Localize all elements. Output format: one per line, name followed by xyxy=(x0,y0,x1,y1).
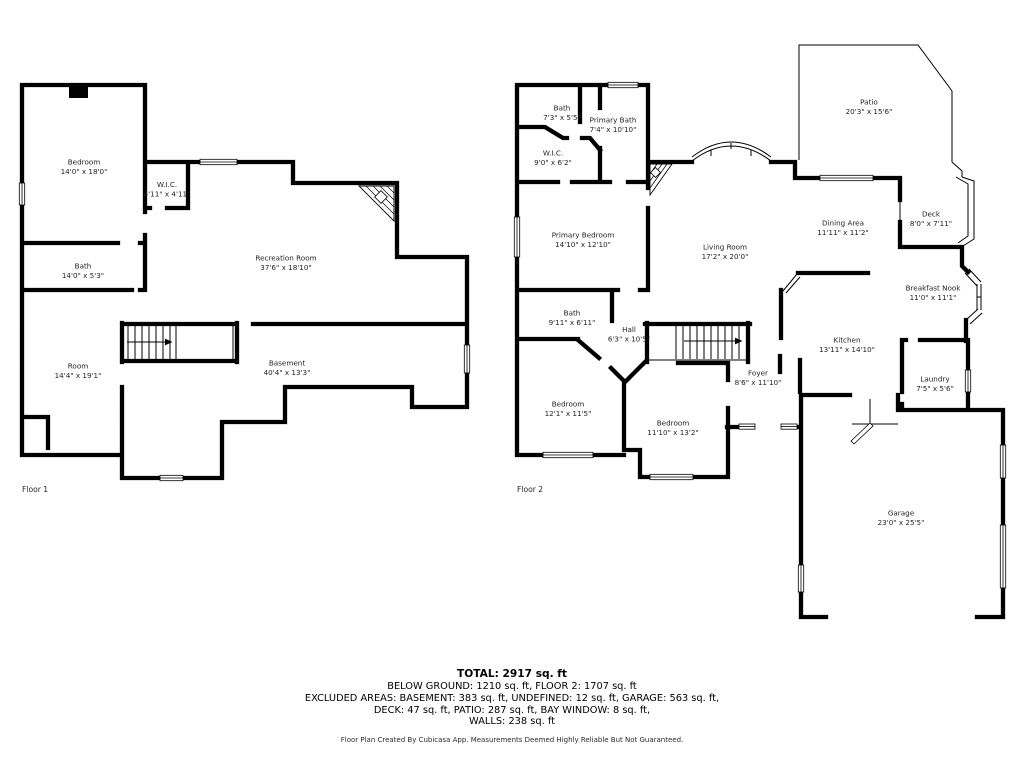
floor1-walls xyxy=(22,85,467,478)
room-label-breakfast-nook: Breakfast Nook 11'0" x 11'1" xyxy=(906,284,962,303)
floor2-fireplace xyxy=(650,164,672,195)
svg-text:Bedroom: Bedroom xyxy=(657,419,690,428)
floor2-plan: Bath 7'3" x 5'5" Primary Bath 7'4" x 10'… xyxy=(514,45,1005,617)
room-label-bath: Bath 14'0" x 5'3" xyxy=(62,262,104,281)
floorplan-drawing: Bedroom 14'0" x 18'0" W.I.C. 4'11" x 4'1… xyxy=(0,0,1024,768)
patio-deck-outline xyxy=(799,45,974,246)
svg-text:17'2" x 20'0": 17'2" x 20'0" xyxy=(702,252,749,261)
svg-text:Patio: Patio xyxy=(860,98,878,107)
floor2-windows xyxy=(514,82,1005,592)
svg-text:W.I.C.: W.I.C. xyxy=(157,180,177,189)
svg-text:Bath: Bath xyxy=(554,104,571,113)
room-label-room: Room 14'4" x 19'1" xyxy=(55,362,102,381)
svg-text:Hall: Hall xyxy=(622,325,636,334)
svg-text:37'6" x 18'10": 37'6" x 18'10" xyxy=(260,263,311,272)
floor2-stairs xyxy=(649,326,748,360)
svg-text:7'4" x 10'10": 7'4" x 10'10" xyxy=(590,125,637,134)
svg-text:Bath: Bath xyxy=(75,262,92,271)
svg-text:Laundry: Laundry xyxy=(920,375,950,384)
svg-text:Living Room: Living Room xyxy=(703,243,747,252)
svg-text:14'0" x 18'0": 14'0" x 18'0" xyxy=(61,167,108,176)
stairs-direction-arrow xyxy=(165,339,173,346)
summary-walls: WALLS: 238 sq. ft xyxy=(0,716,1024,728)
svg-text:Garage: Garage xyxy=(888,509,915,518)
room-label-basement: Basement 40'4" x 13'3" xyxy=(264,359,311,378)
room-label-deck: Deck 8'0" x 7'11" xyxy=(910,210,952,229)
svg-text:W.I.C.: W.I.C. xyxy=(543,149,563,158)
room-label-patio: Patio 20'3" x 15'6" xyxy=(846,98,893,117)
room-label-kitchen: Kitchen 13'11" x 14'10" xyxy=(819,336,875,355)
floor1-stairs xyxy=(127,326,233,359)
room-label-hall: Hall 6'3" x 10'5" xyxy=(608,325,650,344)
svg-text:Room: Room xyxy=(68,362,88,371)
svg-text:11'11" x 11'2": 11'11" x 11'2" xyxy=(817,228,868,237)
floor2-walls xyxy=(517,85,1003,617)
area-summary: TOTAL: 2917 sq. ft BELOW GROUND: 1210 sq… xyxy=(0,668,1024,744)
svg-text:Primary Bath: Primary Bath xyxy=(590,116,637,125)
floorplan-page: Bedroom 14'0" x 18'0" W.I.C. 4'11" x 4'1… xyxy=(0,0,1024,768)
breakfast-nook-bay-window xyxy=(965,269,982,324)
svg-text:8'0" x 7'11": 8'0" x 7'11" xyxy=(910,219,952,228)
svg-text:Breakfast Nook: Breakfast Nook xyxy=(906,284,962,293)
svg-text:7'5" x 5'6": 7'5" x 5'6" xyxy=(916,384,954,393)
summary-excluded-areas: EXCLUDED AREAS: BASEMENT: 383 sq. ft, UN… xyxy=(0,693,1024,705)
svg-text:Bedroom: Bedroom xyxy=(552,400,585,409)
room-label-recreation: Recreation Room 37'6" x 18'10" xyxy=(255,254,316,273)
svg-text:Deck: Deck xyxy=(922,210,941,219)
floor1-fireplace xyxy=(359,186,394,221)
garage-entry-steps xyxy=(851,399,898,444)
room-label-bath-mid: Bath 9'11" x 6'11" xyxy=(549,309,596,328)
svg-text:11'10" x 13'2": 11'10" x 13'2" xyxy=(647,428,698,437)
svg-text:Recreation Room: Recreation Room xyxy=(255,254,316,263)
svg-text:11'0" x 11'1": 11'0" x 11'1" xyxy=(910,293,957,302)
svg-text:14'10" x 12'10": 14'10" x 12'10" xyxy=(555,240,611,249)
room-label-bedroom-mid: Bedroom 11'10" x 13'2" xyxy=(647,419,698,438)
room-label-primary-bedroom: Primary Bedroom 14'10" x 12'10" xyxy=(552,231,615,250)
room-label-bedroom-left: Bedroom 12'1" x 11'5" xyxy=(545,400,592,419)
svg-text:13'11" x 14'10": 13'11" x 14'10" xyxy=(819,345,875,354)
chimney-bump xyxy=(69,85,88,98)
floor2-room-labels: Bath 7'3" x 5'5" Primary Bath 7'4" x 10'… xyxy=(517,98,961,528)
summary-below-ground: BELOW GROUND: 1210 sq. ft, FLOOR 2: 1707… xyxy=(0,681,1024,693)
svg-text:9'0" x 6'2": 9'0" x 6'2" xyxy=(534,158,572,167)
svg-text:7'3" x 5'5": 7'3" x 5'5" xyxy=(543,113,581,122)
kitchen-half-wall xyxy=(783,274,800,293)
room-label-primary-bath: Primary Bath 7'4" x 10'10" xyxy=(590,116,637,135)
svg-text:20'3" x 15'6": 20'3" x 15'6" xyxy=(846,107,893,116)
room-label-bedroom: Bedroom 14'0" x 18'0" xyxy=(61,158,108,177)
svg-text:Foyer: Foyer xyxy=(748,369,768,378)
floor1-windows xyxy=(19,159,469,480)
disclaimer: Floor Plan Created By Cubicasa App. Meas… xyxy=(0,736,1024,744)
summary-total: TOTAL: 2917 sq. ft xyxy=(0,668,1024,681)
room-label-dining-area: Dining Area 11'11" x 11'2" xyxy=(817,219,868,238)
svg-text:14'0" x 5'3": 14'0" x 5'3" xyxy=(62,271,104,280)
room-label-laundry: Laundry 7'5" x 5'6" xyxy=(916,375,954,394)
summary-deck-patio: DECK: 47 sq. ft, PATIO: 287 sq. ft, BAY … xyxy=(0,705,1024,717)
svg-text:4'11" x 4'11": 4'11" x 4'11" xyxy=(144,190,191,199)
svg-text:8'6" x 11'10": 8'6" x 11'10" xyxy=(735,378,782,387)
room-label-wic: W.I.C. 4'11" x 4'11" xyxy=(144,180,191,199)
room-label-living-room: Living Room 17'2" x 20'0" xyxy=(702,243,749,262)
svg-text:Dining Area: Dining Area xyxy=(822,219,864,228)
svg-text:Basement: Basement xyxy=(269,359,305,368)
svg-text:40'4" x 13'3": 40'4" x 13'3" xyxy=(264,368,311,377)
room-label-garage: Garage 23'0" x 25'5" xyxy=(878,509,925,528)
svg-text:12'1" x 11'5": 12'1" x 11'5" xyxy=(545,409,592,418)
svg-text:14'4" x 19'1": 14'4" x 19'1" xyxy=(55,371,102,380)
floor1-plan: Bedroom 14'0" x 18'0" W.I.C. 4'11" x 4'1… xyxy=(19,85,469,494)
svg-text:23'0" x 25'5": 23'0" x 25'5" xyxy=(878,518,925,527)
svg-text:Kitchen: Kitchen xyxy=(833,336,860,345)
room-label-bath-top: Bath 7'3" x 5'5" xyxy=(543,104,581,123)
living-room-bay-window xyxy=(692,142,771,161)
garage-door-leaf xyxy=(851,423,873,444)
floor2-tag: Floor 2 xyxy=(517,485,543,494)
room-label-wic: W.I.C. 9'0" x 6'2" xyxy=(534,149,572,168)
svg-text:Bedroom: Bedroom xyxy=(68,158,101,167)
svg-text:Bath: Bath xyxy=(564,309,581,318)
svg-text:9'11" x 6'11": 9'11" x 6'11" xyxy=(549,318,596,327)
svg-text:Primary Bedroom: Primary Bedroom xyxy=(552,231,615,240)
floor1-tag: Floor 1 xyxy=(22,485,48,494)
room-label-foyer: Foyer 8'6" x 11'10" xyxy=(735,369,782,388)
svg-text:6'3" x 10'5": 6'3" x 10'5" xyxy=(608,335,650,344)
